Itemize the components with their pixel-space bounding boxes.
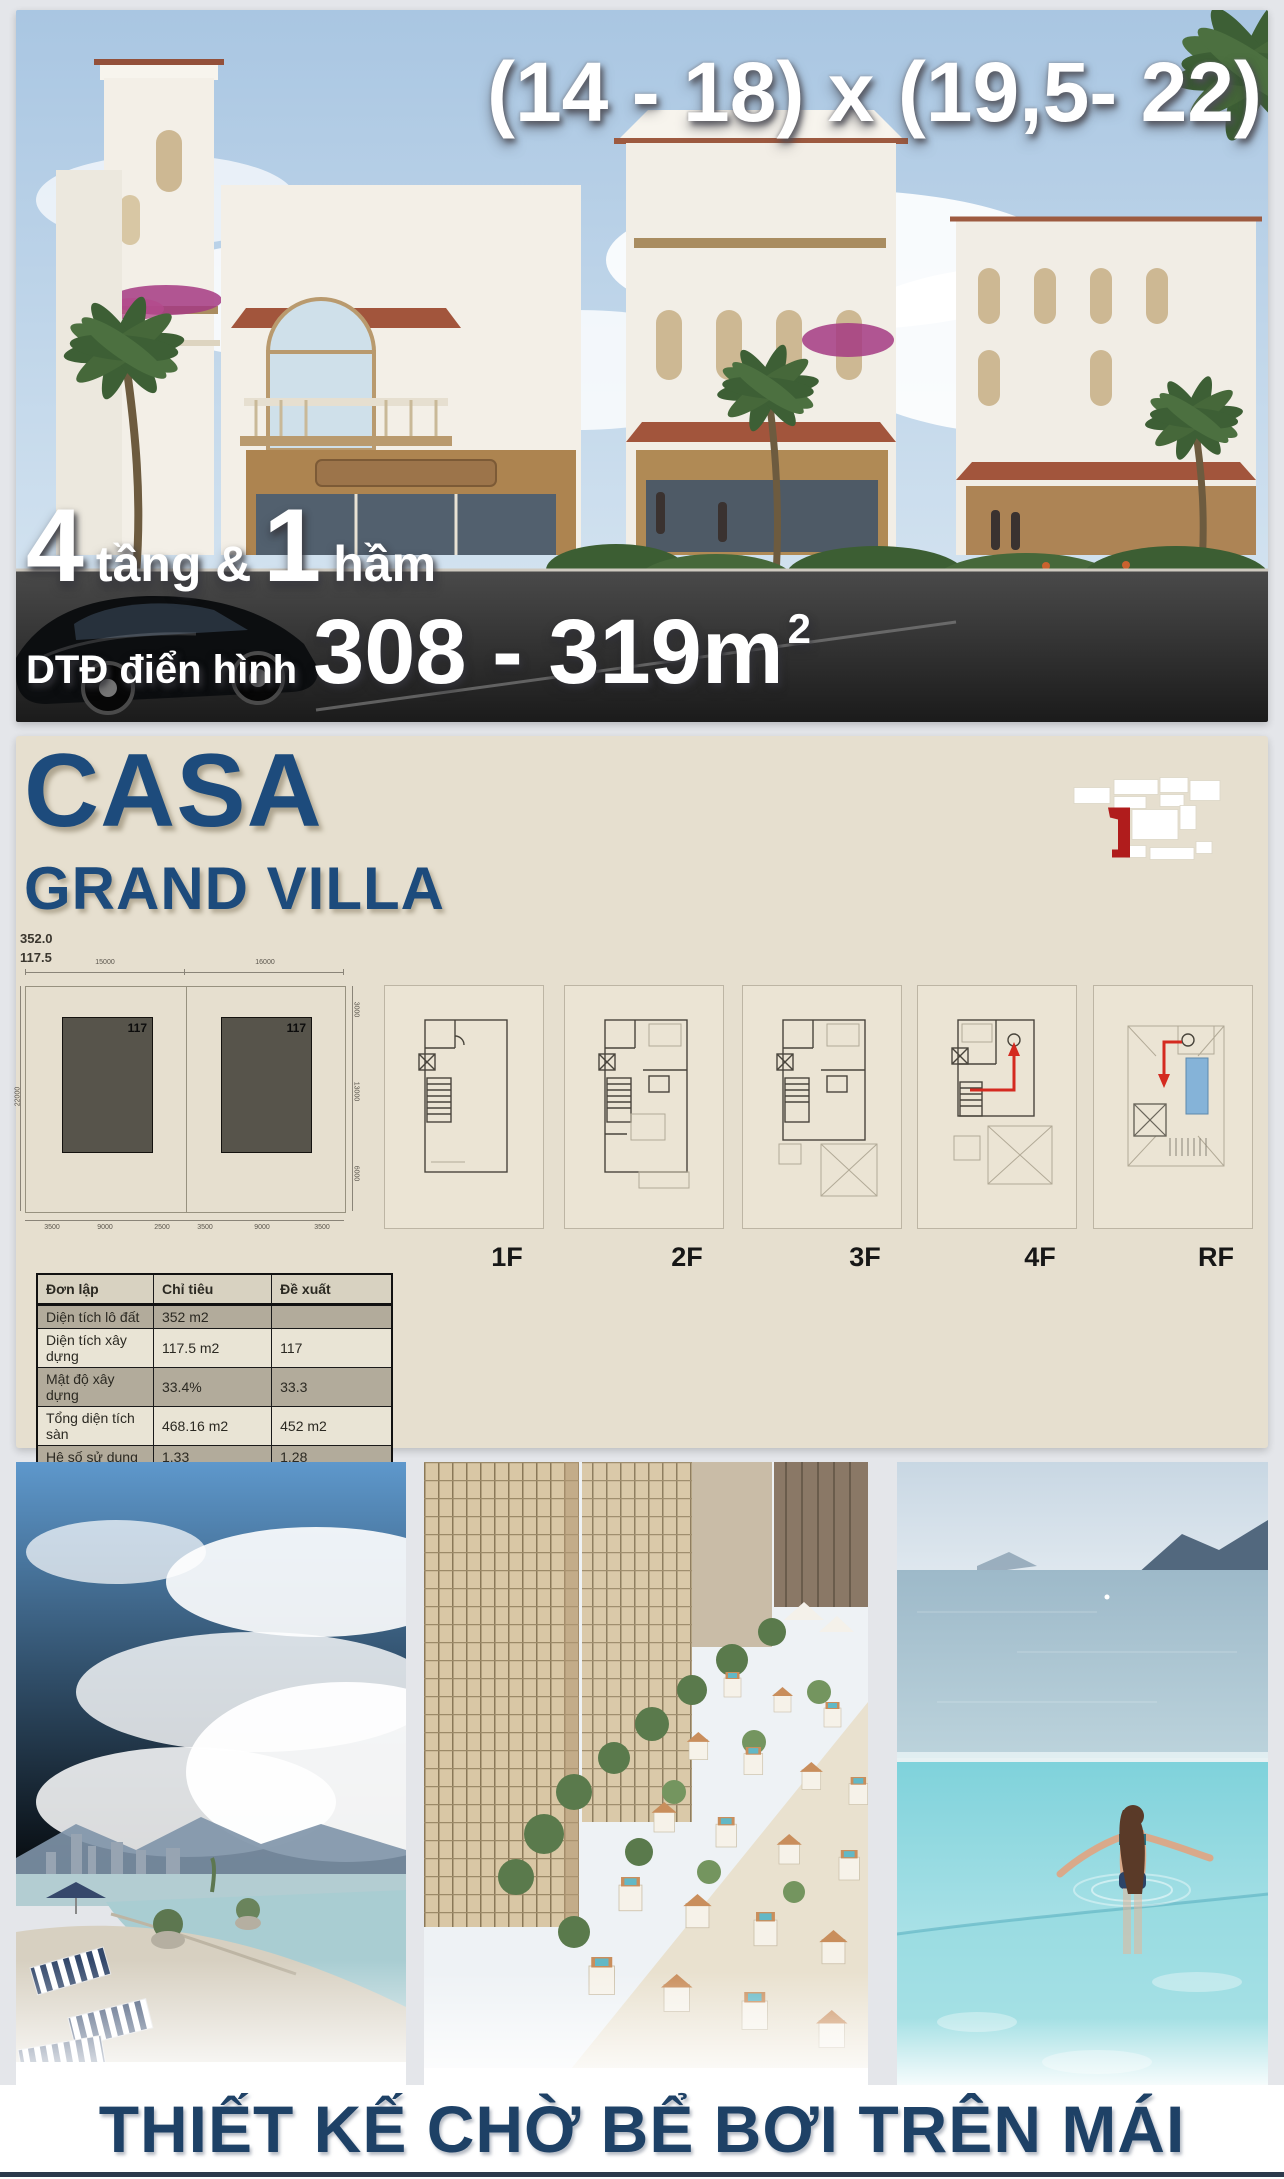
page-title: CASA	[24, 732, 323, 851]
table-row: Tổng diện tích sàn 468.16 m2 452 m2	[37, 1407, 392, 1446]
row-label: Mật độ xây dựng	[37, 1368, 153, 1407]
dim-label: 9000	[85, 1224, 125, 1231]
basement-count: 1	[263, 502, 321, 590]
col-header: Chỉ tiêu	[153, 1274, 271, 1305]
row-value: 117	[272, 1329, 392, 1368]
rooftop-pool-rect	[1186, 1058, 1208, 1114]
floorplan-3f	[742, 985, 902, 1229]
row-label: Diện tích lô đất	[37, 1305, 153, 1329]
dim-label: 9000	[242, 1224, 282, 1231]
floorplan-rf	[1093, 985, 1253, 1229]
floorplan-1f	[384, 985, 544, 1229]
col-header: Đơn lập	[37, 1274, 153, 1305]
unit-area-label: 117	[287, 1021, 306, 1035]
stair-route-up-arrow-icon	[970, 1042, 1020, 1090]
brochure-page: (14 - 18) x (19,5- 22) 4 tầng & 1 hầm DT…	[0, 0, 1284, 2179]
table-row: Diện tích lô đất 352 m2	[37, 1305, 392, 1329]
dim-label: 3500	[185, 1224, 225, 1231]
row-label: Tổng diện tích sàn	[37, 1407, 153, 1446]
hero-villa-render: (14 - 18) x (19,5- 22) 4 tầng & 1 hầm DT…	[16, 10, 1268, 722]
table-row: Mật độ xây dựng 33.4% 33.3	[37, 1368, 392, 1407]
lot-boundary: 117 117	[25, 986, 346, 1213]
floor-label-rf: RF	[1161, 1242, 1271, 1273]
casa-grand-villa-panel: CASA GRAND VILLA 352.0 117.5 15000	[16, 736, 1268, 1448]
row-value: 33.3	[272, 1368, 392, 1407]
floorplan-4f	[917, 985, 1077, 1229]
table-row: Diện tích xây dựng 117.5 m2 117	[37, 1329, 392, 1368]
typical-area-text: DTĐ điển hình 308 - 319m 2	[26, 616, 823, 693]
dim-label: 15000	[85, 959, 125, 966]
floors-count-above: 4	[26, 502, 84, 590]
row-value: 33.4%	[153, 1368, 271, 1407]
dim-label: 16000	[245, 959, 285, 966]
dim-label: 22000	[15, 1077, 22, 1117]
building-footprint: 117	[221, 1017, 312, 1153]
photo-towers-and-villas	[424, 1462, 868, 2090]
page-subtitle: GRAND VILLA	[24, 854, 445, 923]
floors-label: tầng &	[96, 535, 252, 593]
dim-label: 2500	[142, 1224, 182, 1231]
site-plan: 15000 16000 22000 3000 13000 6000 117 11…	[20, 958, 365, 1240]
unit-area-label: 117	[128, 1021, 147, 1035]
row-value	[272, 1305, 392, 1329]
dim-label: 3500	[32, 1224, 72, 1231]
photo-rooftop-pool-city	[16, 1462, 406, 2090]
col-header: Đề xuất	[272, 1274, 392, 1305]
spec-table: Đơn lập Chỉ tiêu Đề xuất Diện tích lô đấ…	[36, 1273, 393, 1489]
floor-label-1f: 1F	[452, 1242, 562, 1273]
row-value: 452 m2	[272, 1407, 392, 1446]
building-footprint: 117	[62, 1017, 153, 1153]
dim-label: 3000	[353, 990, 360, 1030]
floor-label-3f: 3F	[810, 1242, 920, 1273]
row-value: 117.5 m2	[153, 1329, 271, 1368]
highlighted-lot-marker	[1108, 808, 1130, 858]
floor-label-4f: 4F	[985, 1242, 1095, 1273]
row-label: Diện tích xây dựng	[37, 1329, 153, 1368]
row-value: 352 m2	[153, 1305, 271, 1329]
table-header-row: Đơn lập Chỉ tiêu Đề xuất	[37, 1274, 392, 1305]
area-superscript: 2	[788, 605, 811, 653]
site-key-map	[1066, 764, 1246, 872]
basement-label: hầm	[333, 535, 436, 593]
footer-band: THIẾT KẾ CHỜ BỂ BƠI TRÊN MÁI	[0, 2085, 1284, 2179]
lot-dimensions-text: (14 - 18) x (19,5- 22)	[487, 44, 1262, 141]
row-value: 468.16 m2	[153, 1407, 271, 1446]
area-value: 308 - 319m	[313, 616, 784, 690]
floorplan-2f	[564, 985, 724, 1229]
floors-text: 4 tầng & 1 hầm	[26, 502, 436, 593]
photo-infinity-pool-woman	[897, 1462, 1268, 2090]
footer-divider-line	[0, 2172, 1284, 2177]
footer-slogan: THIẾT KẾ CHỜ BỂ BƠI TRÊN MÁI	[0, 2091, 1284, 2167]
dim-label: 13000	[353, 1072, 360, 1112]
dim-label: 6000	[353, 1154, 360, 1194]
dim-label: 3500	[302, 1224, 342, 1231]
stat-lot-area: 352.0	[20, 930, 53, 949]
floor-label-2f: 2F	[632, 1242, 742, 1273]
area-label: DTĐ điển hình	[26, 648, 297, 693]
